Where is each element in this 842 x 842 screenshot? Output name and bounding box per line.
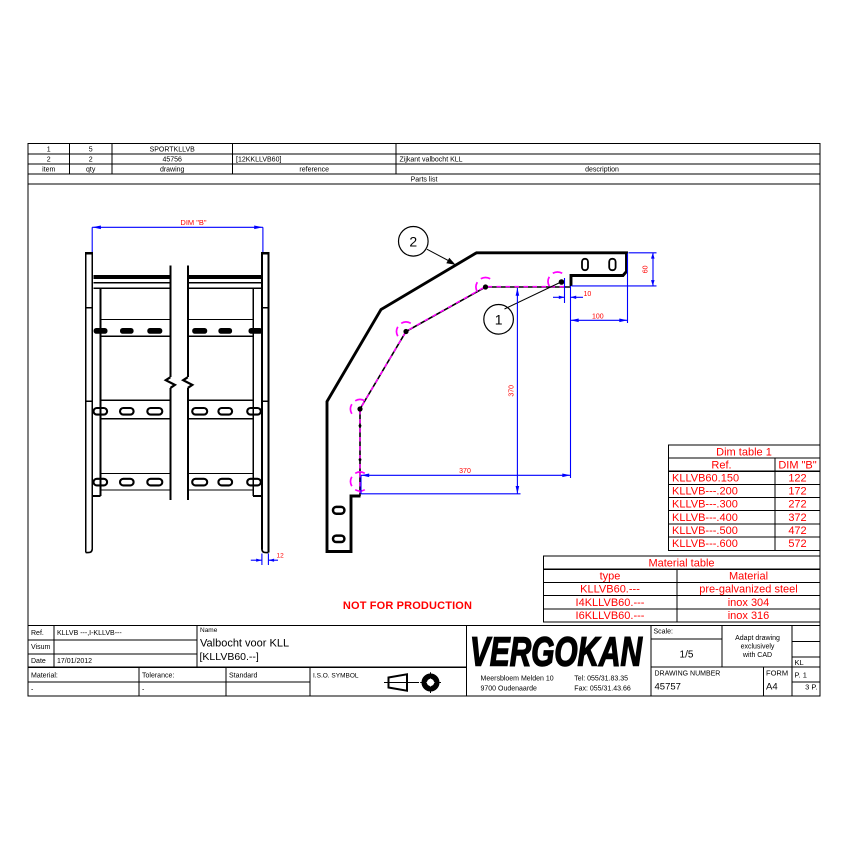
- svg-text:Standard: Standard: [229, 673, 258, 680]
- svg-text:3 P.: 3 P.: [805, 683, 817, 692]
- svg-text:KLLVB---.300: KLLVB---.300: [672, 499, 738, 511]
- svg-text:Zijkant valbocht KLL: Zijkant valbocht KLL: [400, 157, 463, 164]
- svg-text:DIM "B": DIM "B": [180, 218, 206, 227]
- svg-text:[12KKLLVB60]: [12KKLLVB60]: [236, 157, 281, 164]
- svg-text:description: description: [585, 167, 619, 174]
- svg-text:KLLVB---.400: KLLVB---.400: [672, 512, 738, 524]
- svg-text:Dim table 1: Dim table 1: [716, 446, 772, 458]
- svg-text:I6KLLVB60.---: I6KLLVB60.---: [576, 610, 645, 622]
- svg-text:NOT FOR PRODUCTION: NOT FOR PRODUCTION: [343, 600, 472, 612]
- svg-text:Scale:: Scale:: [654, 629, 674, 636]
- svg-text:1: 1: [495, 311, 503, 327]
- svg-text:KLLVB---.200: KLLVB---.200: [672, 486, 738, 498]
- svg-text:VERGOKAN: VERGOKAN: [470, 629, 643, 675]
- svg-text:KLLVB---.500: KLLVB---.500: [672, 525, 738, 537]
- svg-text:Visum: Visum: [31, 644, 50, 651]
- svg-text:KLLVB60.---: KLLVB60.---: [580, 584, 640, 596]
- svg-text:Material:: Material:: [31, 673, 58, 680]
- svg-text:P. 1: P. 1: [795, 671, 807, 680]
- svg-text:100: 100: [592, 313, 604, 320]
- svg-text:Valbocht voor KLL: Valbocht voor KLL: [200, 638, 289, 650]
- svg-text:KLLVB60.150: KLLVB60.150: [672, 472, 739, 484]
- svg-text:370: 370: [509, 385, 516, 397]
- svg-text:Tolerance:: Tolerance:: [142, 673, 174, 680]
- svg-text:Fax: 055/31.43.66: Fax: 055/31.43.66: [574, 686, 631, 693]
- svg-text:KL: KL: [795, 658, 804, 667]
- svg-text:exclusively: exclusively: [741, 644, 775, 651]
- svg-text:Ref.: Ref.: [711, 459, 731, 471]
- svg-text:inox 316: inox 316: [728, 610, 770, 622]
- svg-text:pre-galvanized steel: pre-galvanized steel: [699, 584, 797, 596]
- svg-text:2: 2: [89, 157, 93, 164]
- svg-text:qty: qty: [86, 167, 96, 174]
- svg-text:type: type: [600, 570, 621, 582]
- svg-text:drawing: drawing: [160, 167, 185, 174]
- svg-text:370: 370: [459, 468, 471, 475]
- svg-text:I.S.O. SYMBOL: I.S.O. SYMBOL: [313, 673, 359, 680]
- svg-text:A4: A4: [766, 682, 778, 693]
- svg-text:372: 372: [788, 512, 806, 524]
- svg-text:Date: Date: [31, 658, 46, 665]
- svg-text:572: 572: [788, 538, 806, 550]
- svg-text:Material table: Material table: [648, 557, 714, 569]
- svg-text:2: 2: [409, 233, 417, 249]
- svg-text:KLLVB ---,I-KLLVB---: KLLVB ---,I-KLLVB---: [57, 630, 122, 637]
- svg-text:item: item: [42, 167, 55, 174]
- svg-text:Meersbloem Melden 10: Meersbloem Melden 10: [481, 676, 554, 683]
- svg-text:DRAWING NUMBER: DRAWING NUMBER: [655, 671, 721, 678]
- svg-text:Adapt drawing: Adapt drawing: [735, 635, 780, 642]
- svg-text:2: 2: [47, 157, 51, 164]
- svg-text:17/01/2012: 17/01/2012: [57, 658, 92, 665]
- svg-text:Tel: 055/31.83.35: Tel: 055/31.83.35: [574, 676, 628, 683]
- svg-text:reference: reference: [299, 167, 329, 174]
- svg-text:with CAD: with CAD: [742, 652, 772, 659]
- svg-text:12: 12: [277, 553, 285, 560]
- svg-text:1: 1: [47, 146, 51, 153]
- svg-text:45756: 45756: [162, 157, 182, 164]
- svg-text:272: 272: [788, 499, 806, 511]
- svg-text:5: 5: [89, 146, 93, 153]
- svg-text:9700 Oudenaarde: 9700 Oudenaarde: [481, 686, 538, 693]
- svg-text:Name: Name: [200, 627, 218, 634]
- svg-text:[KLLVB60.--]: [KLLVB60.--]: [200, 651, 259, 663]
- svg-text:FORM: FORM: [766, 669, 788, 678]
- svg-text:45757: 45757: [655, 682, 681, 693]
- svg-text:SPORTKLLVB: SPORTKLLVB: [150, 146, 196, 153]
- svg-text:122: 122: [788, 472, 806, 484]
- svg-text:I4KLLVB60.---: I4KLLVB60.---: [576, 597, 645, 609]
- svg-text:472: 472: [788, 525, 806, 537]
- svg-text:Ref.: Ref.: [31, 630, 44, 637]
- svg-text:Parts list: Parts list: [411, 177, 438, 184]
- svg-text:KLLVB---.600: KLLVB---.600: [672, 538, 738, 550]
- svg-text:Material: Material: [729, 570, 768, 582]
- svg-text:172: 172: [788, 486, 806, 498]
- svg-text:10: 10: [584, 291, 592, 298]
- svg-text:60: 60: [642, 265, 649, 273]
- svg-text:DIM "B": DIM "B": [778, 459, 816, 471]
- svg-text:1/5: 1/5: [680, 650, 694, 661]
- svg-text:inox 304: inox 304: [728, 597, 770, 609]
